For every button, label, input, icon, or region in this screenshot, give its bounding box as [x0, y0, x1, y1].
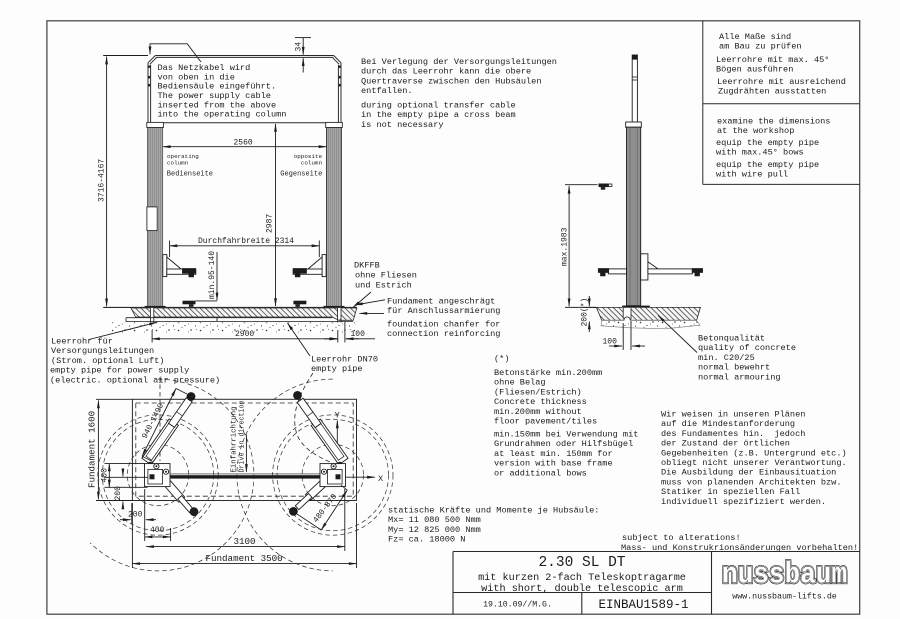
svg-text:during optional transfer cable: during optional transfer cable — [361, 101, 516, 111]
svg-text:2560: 2560 — [234, 138, 253, 147]
svg-text:obliegt nicht unserer Verantwo: obliegt nicht unserer Verantwortung. — [661, 458, 847, 468]
svg-text:ohne Fliesen: ohne Fliesen — [355, 271, 417, 281]
svg-text:100: 100 — [603, 337, 618, 346]
svg-text:connection reinforcing: connection reinforcing — [387, 329, 500, 339]
svg-text:Die Ausbildung der Einbausitua: Die Ausbildung der Einbausituation — [661, 468, 836, 478]
svg-text:2900: 2900 — [235, 330, 254, 339]
svg-text:normal armouring: normal armouring — [698, 372, 781, 382]
svg-text:normal bewehrt: normal bewehrt — [698, 363, 770, 373]
svg-text:Wir weisen in unseren Plänen: Wir weisen in unseren Plänen — [661, 410, 805, 420]
svg-text:Zugdrähten ausstatten: Zugdrähten ausstatten — [718, 86, 826, 96]
svg-text:durch das Leerrohr kann die ob: durch das Leerrohr kann die obere — [361, 67, 531, 77]
svg-text:www.nussbaum-lifts.de: www.nussbaum-lifts.de — [732, 592, 837, 602]
svg-text:Einfahrrichtung: Einfahrrichtung — [230, 407, 238, 473]
svg-text:(Fliesen/Estrich): (Fliesen/Estrich) — [494, 387, 582, 397]
svg-text:muss von planenden Architekten: muss von planenden Architekten bzw. — [661, 477, 842, 487]
svg-text:200(*): 200(*) — [581, 298, 590, 327]
svg-text:3100: 3100 — [234, 536, 256, 547]
svg-text:at least min. 150mm for: at least min. 150mm for — [494, 449, 613, 459]
svg-text:with max.45° bows: with max.45° bows — [716, 147, 804, 157]
svg-text:version with base frame: version with base frame — [494, 459, 613, 469]
svg-text:Fundament angeschrägt: Fundament angeschrägt — [387, 297, 495, 307]
svg-text:Gegebenheiten (z.B. Untergrund: Gegebenheiten (z.B. Untergrund etc.) — [661, 448, 847, 458]
svg-text:Versorgungsleitungen: Versorgungsleitungen — [51, 346, 154, 356]
svg-text:Bedienseite: Bedienseite — [167, 171, 213, 179]
svg-text:Leerrohr DN70: Leerrohr DN70 — [311, 355, 378, 365]
svg-text:min. C20/25: min. C20/25 — [698, 353, 755, 363]
svg-text:2.30 SL DT: 2.30 SL DT — [538, 555, 625, 571]
svg-text:at the workshop: at the workshop — [717, 126, 794, 136]
svg-text:Bei Verlegung der Versorgungsl: Bei Verlegung der Versorgungsleitungen — [361, 57, 557, 67]
svg-text:400: 400 — [101, 468, 110, 483]
svg-text:am Bau zu prüfen: am Bau zu prüfen — [719, 41, 802, 51]
svg-text:max.1983: max.1983 — [561, 227, 570, 266]
svg-text:2987: 2987 — [266, 214, 275, 233]
svg-text:Mx= 11 080 500 Nmm: Mx= 11 080 500 Nmm — [388, 515, 481, 525]
svg-text:Drive in direction: Drive in direction — [239, 401, 247, 473]
svg-text:200: 200 — [114, 486, 123, 501]
svg-text:min.150mm bei Verwendung mit: min.150mm bei Verwendung mit — [494, 430, 638, 440]
svg-text:nussbaum: nussbaum — [722, 559, 847, 593]
svg-text:with short, double telescopic: with short, double telescopic arm — [481, 583, 683, 595]
svg-text:My= 12 825 000 Nmm: My= 12 825 000 Nmm — [388, 525, 481, 535]
svg-text:Leerrohr für: Leerrohr für — [51, 337, 113, 347]
svg-text:400: 400 — [150, 526, 165, 535]
svg-text:Durchfahrbreite 2314: Durchfahrbreite 2314 — [198, 237, 294, 246]
svg-text:Fundament 3500: Fundament 3500 — [206, 553, 283, 564]
svg-text:Statiker in speziellen Fall: Statiker in speziellen Fall — [661, 487, 800, 497]
svg-text:individuell spezifiziert werde: individuell spezifiziert werden. — [661, 497, 826, 507]
svg-text:der Zustand der örtlichen: der Zustand der örtlichen — [661, 439, 790, 449]
svg-text:auf die Mindestanforderung: auf die Mindestanforderung — [661, 419, 795, 429]
svg-text:entfallen.: entfallen. — [361, 86, 413, 96]
svg-text:für Anschlussarmierung: für Anschlussarmierung — [387, 306, 500, 316]
svg-text:empty pipe: empty pipe — [311, 364, 363, 374]
svg-text:100: 100 — [351, 330, 366, 339]
svg-text:subject to alterations!: subject to alterations! — [622, 533, 741, 543]
svg-text:X: X — [378, 474, 383, 484]
svg-text:Concrete thickness: Concrete thickness — [494, 397, 587, 407]
svg-text:min.200mm without: min.200mm without — [494, 407, 582, 417]
svg-text:(Strom. optional Luft): (Strom. optional Luft) — [51, 356, 164, 366]
svg-text:Quertraverse zwischen den Hubs: Quertraverse zwischen den Hubsäulen — [361, 76, 542, 86]
svg-text:ohne Belag: ohne Belag — [494, 378, 546, 388]
svg-text:(*): (*) — [494, 354, 509, 364]
svg-text:3716-4167: 3716-4167 — [98, 159, 107, 202]
svg-text:34: 34 — [295, 42, 304, 52]
svg-text:floor pavement/tiles: floor pavement/tiles — [494, 417, 597, 427]
svg-text:19.10.09//M.G.: 19.10.09//M.G. — [483, 600, 552, 610]
svg-text:mit kurzen 2-fach Teleskoptrag: mit kurzen 2-fach Teleskoptragarme — [478, 572, 686, 584]
svg-text:with wire pull: with wire pull — [716, 169, 788, 179]
svg-text:Fz= ca. 18000 N: Fz= ca. 18000 N — [388, 535, 465, 545]
svg-text:Y: Y — [335, 411, 340, 421]
svg-text:statische Kräfte und Momente j: statische Kräfte und Momente je Hubsäule… — [388, 506, 599, 516]
svg-text:(electric. optional air pressu: (electric. optional air pressure) — [50, 375, 220, 385]
svg-text:EINBAU1589-1: EINBAU1589-1 — [598, 598, 688, 612]
svg-text:und Estrich: und Estrich — [355, 281, 412, 291]
svg-text:Grundrahmen oder Hilfsbügel: Grundrahmen oder Hilfsbügel — [494, 439, 633, 449]
svg-text:Bögen ausführen: Bögen ausführen — [716, 64, 793, 74]
svg-text:column: column — [167, 160, 189, 167]
svg-text:in the empty pipe a cross beam: in the empty pipe a cross beam — [361, 110, 516, 120]
svg-text:Betonqualität: Betonqualität — [698, 334, 765, 344]
svg-text:Gegenseite: Gegenseite — [280, 171, 322, 179]
svg-text:Betonstärke min.200mm: Betonstärke min.200mm — [494, 368, 602, 378]
svg-text:Fundament 1600: Fundament 1600 — [87, 411, 98, 488]
svg-text:foundation chanfer for: foundation chanfer for — [387, 320, 500, 330]
svg-text:is not necessary: is not necessary — [361, 120, 444, 130]
svg-text:des Fundamentes hin. jedoch: des Fundamentes hin. jedoch — [661, 429, 805, 439]
svg-text:or additional bows: or additional bows — [494, 468, 587, 478]
svg-text:DKFFB: DKFFB — [354, 261, 380, 271]
svg-text:min.95-140: min.95-140 — [208, 251, 217, 299]
svg-text:column: column — [301, 160, 323, 167]
svg-text:empty pipe for power supply: empty pipe for power supply — [50, 366, 189, 376]
svg-text:200: 200 — [128, 511, 143, 520]
svg-text:quality of concrete: quality of concrete — [698, 343, 796, 353]
svg-text:into the operating column: into the operating column — [158, 110, 287, 120]
